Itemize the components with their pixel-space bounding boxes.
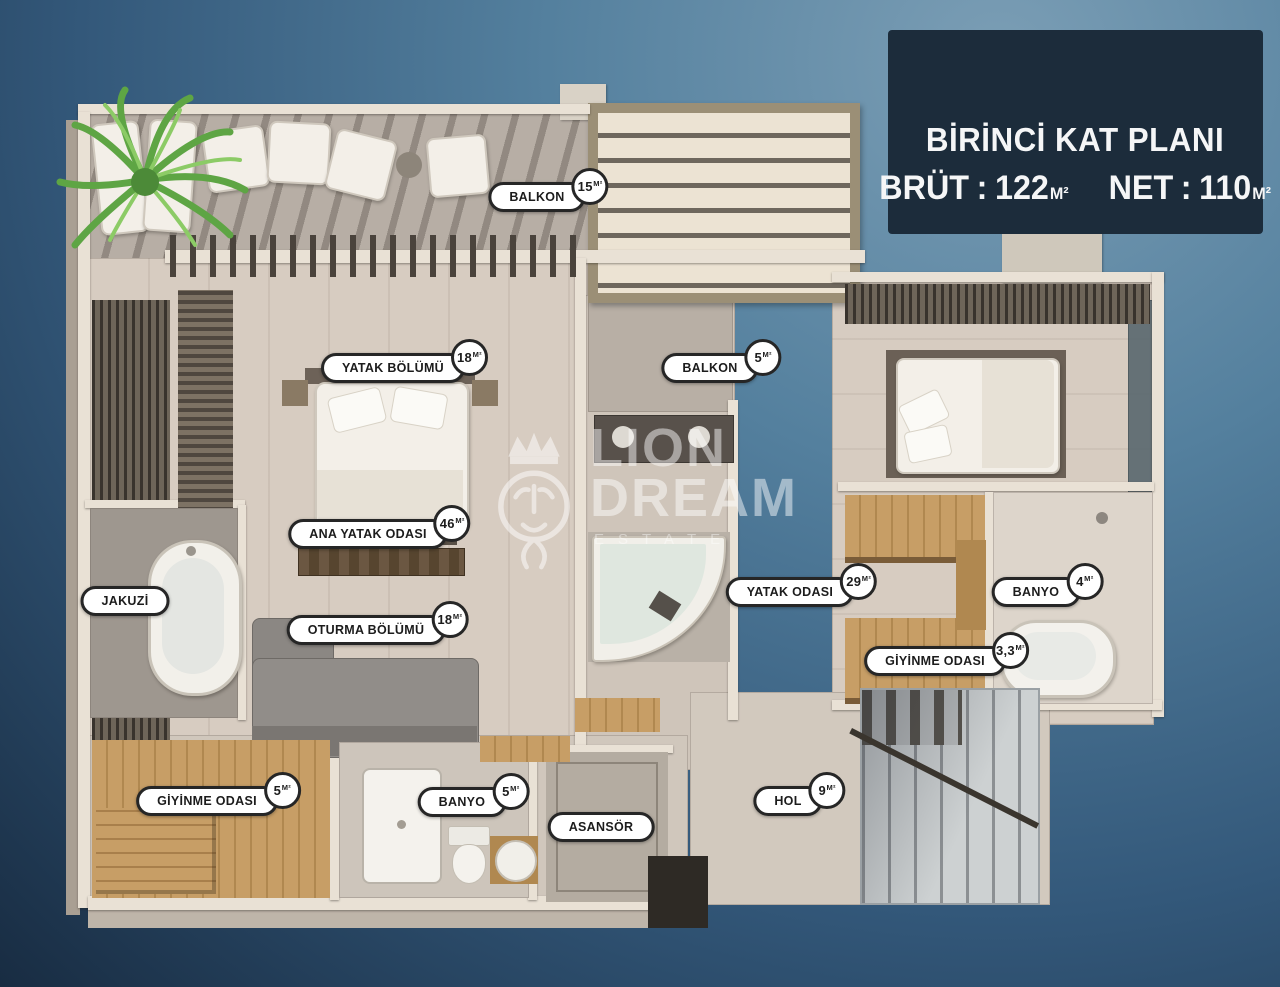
room-area-badge: 5M² <box>492 773 529 810</box>
room-label-text: YATAK ODASI <box>747 585 833 599</box>
room-label-text: GİYİNME ODASI <box>157 794 257 808</box>
room-label-text: BALKON <box>509 190 564 204</box>
area-value: 9 <box>818 783 826 798</box>
room-area-badge: 18M² <box>451 339 488 376</box>
staircase <box>860 688 1040 905</box>
blanket <box>982 360 1054 468</box>
area-unit: M² <box>453 612 462 621</box>
area-value: 5 <box>274 783 282 798</box>
room-label-text: BANYO <box>439 795 486 809</box>
area-unit: M² <box>455 516 464 525</box>
toilet-tank <box>448 826 490 846</box>
room-label-text: HOL <box>774 794 801 808</box>
room-label-yatak-bolumu: YATAK BÖLÜMÜ 18M² <box>321 353 465 383</box>
area-value: 29 <box>846 574 861 589</box>
room-label-yatak-odasi: YATAK ODASI 29M² <box>726 577 854 607</box>
curtain-band-bedroom2 <box>845 284 1150 324</box>
area-value: 15 <box>578 179 593 194</box>
nightstand <box>282 380 308 406</box>
room-label-text: JAKUZİ <box>102 594 149 608</box>
room-area-badge: 3,3M² <box>992 632 1029 669</box>
brut-value: 122 <box>995 169 1049 208</box>
area-unit: M² <box>826 783 835 792</box>
separator: : <box>977 169 988 208</box>
room-label-text: YATAK BÖLÜMÜ <box>342 361 444 375</box>
room-area-badge: 15M² <box>572 168 609 205</box>
room-label-text: BANYO <box>1013 585 1060 599</box>
floor-plan-scene: LION DREAM ESTATE BALKON 15M² YATAK BÖLÜ… <box>0 0 1280 987</box>
wall-bedroom2-bottom <box>838 482 1154 491</box>
stair-shadow <box>862 690 1038 903</box>
toilet-bowl <box>452 844 486 884</box>
room-label-hol: HOL 9M² <box>753 786 822 816</box>
room-label-ana-yatak-odasi: ANA YATAK ODASI 46M² <box>288 519 447 549</box>
area-unit: M² <box>762 350 771 359</box>
plan-title: BİRİNCİ KAT PLANI <box>926 121 1224 159</box>
side-table <box>396 152 422 178</box>
armchair <box>425 133 490 198</box>
faucet <box>186 546 196 556</box>
room-label-oturma-bolumu: OTURMA BÖLÜMÜ 18M² <box>287 615 446 645</box>
shower-tray <box>362 768 442 884</box>
round-sink <box>495 840 537 882</box>
area-value: 4 <box>1076 574 1084 589</box>
net-unit: M² <box>1253 184 1272 204</box>
area-unit: M² <box>1015 643 1024 652</box>
wardrobe-side <box>956 540 986 630</box>
area-unit: M² <box>1084 574 1093 583</box>
room-label-asansor: ASANSÖR M² <box>548 812 655 842</box>
wall-closet-right <box>330 740 339 900</box>
room-label-balkon-5: BALKON 5M² <box>661 353 758 383</box>
wood-threshold <box>575 698 660 732</box>
room-area-badge: 18M² <box>431 601 468 638</box>
area-unit: M² <box>510 784 519 793</box>
room-label-banyo-5: BANYO 5M² <box>418 787 507 817</box>
wall-center-vertical <box>575 258 586 763</box>
area-value: 3,3 <box>996 643 1015 658</box>
wall-bedroom2-top <box>832 272 1164 282</box>
area-value: 18 <box>437 612 452 627</box>
room-label-giyinme-odasi-33: GİYİNME ODASI 3,3M² <box>864 646 1006 676</box>
area-unit: M² <box>862 574 871 583</box>
room-label-text: ASANSÖR <box>569 820 634 834</box>
room-label-text: OTURMA BÖLÜMÜ <box>308 623 425 637</box>
room-label-text: GİYİNME ODASI <box>885 654 985 668</box>
fern-plant-icon <box>30 70 260 270</box>
area-unit: M² <box>282 783 291 792</box>
plan-title-box: BİRİNCİ KAT PLANI BRÜT:122M² NET:110M² <box>888 30 1263 234</box>
vanity-sink <box>688 426 710 448</box>
vanity-sink <box>612 426 634 448</box>
nightstand <box>472 380 498 406</box>
master-wardrobe-slats <box>178 290 233 520</box>
armchair <box>266 120 331 185</box>
room-area-badge: 4M² <box>1066 563 1103 600</box>
room-label-banyo-4: BANYO 4M² <box>992 577 1081 607</box>
room-label-balkon-15: BALKON 15M² <box>488 182 585 212</box>
shower-head <box>1096 512 1108 524</box>
room-label-text: BALKON <box>682 361 737 375</box>
outer-wall-right <box>1152 272 1164 717</box>
brut-label: BRÜT <box>880 169 970 208</box>
room-label-jakuzi: JAKUZİ M² <box>81 586 170 616</box>
brut-unit: M² <box>1050 184 1069 204</box>
room-area-badge: 5M² <box>264 772 301 809</box>
shaft-opening <box>648 856 708 928</box>
net-value: 110 <box>1199 169 1251 208</box>
area-unit: M² <box>473 350 482 359</box>
room-label-text: ANA YATAK ODASI <box>309 527 426 541</box>
room-area-badge: 5M² <box>745 339 782 376</box>
wood-threshold <box>480 736 570 762</box>
room-label-giyinme-odasi-5: GİYİNME ODASI 5M² <box>136 786 278 816</box>
area-value: 5 <box>502 784 510 799</box>
fern-plant <box>30 70 260 270</box>
area-unit: M² <box>593 179 602 188</box>
wood-console <box>298 548 465 576</box>
shower-drain <box>397 820 406 829</box>
plan-area-summary: BRÜT:122M² NET:110M² <box>880 169 1272 208</box>
area-value: 46 <box>440 516 455 531</box>
separator: : <box>1181 169 1192 208</box>
jacuzzi-tub-inner <box>162 558 224 674</box>
area-value: 5 <box>754 350 762 365</box>
curtain-band-upper-left <box>92 300 170 500</box>
bottom-wall-face <box>88 908 688 928</box>
net-label: NET <box>1109 169 1174 208</box>
closet-bench <box>96 808 216 894</box>
area-value: 18 <box>457 350 472 365</box>
skylight-slats <box>588 103 860 303</box>
